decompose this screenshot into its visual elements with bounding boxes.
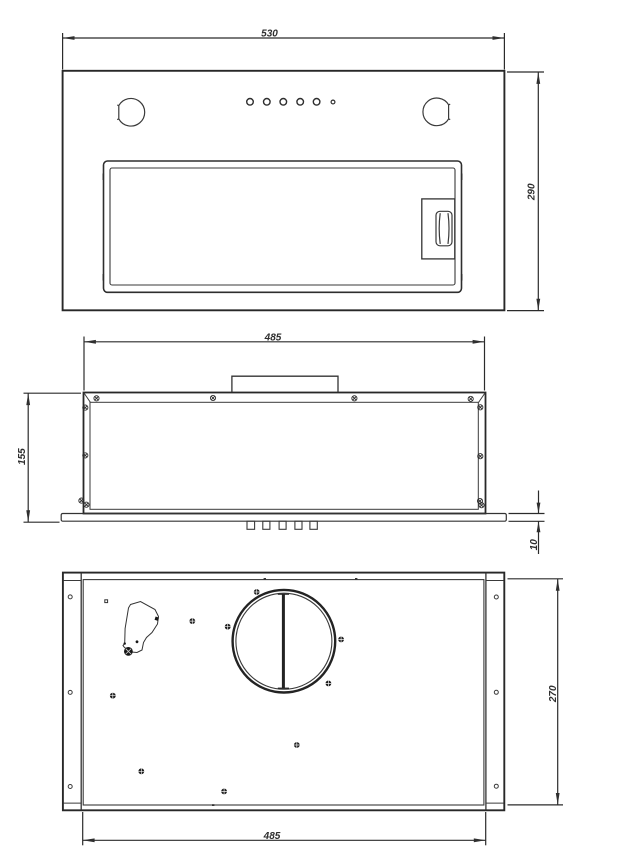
svg-text:10: 10	[529, 539, 540, 551]
svg-text:485: 485	[263, 831, 281, 842]
svg-text:155: 155	[17, 448, 28, 465]
svg-text:530: 530	[261, 28, 278, 39]
svg-text:290: 290	[527, 183, 538, 201]
svg-text:485: 485	[264, 333, 282, 344]
svg-text:270: 270	[548, 685, 559, 703]
